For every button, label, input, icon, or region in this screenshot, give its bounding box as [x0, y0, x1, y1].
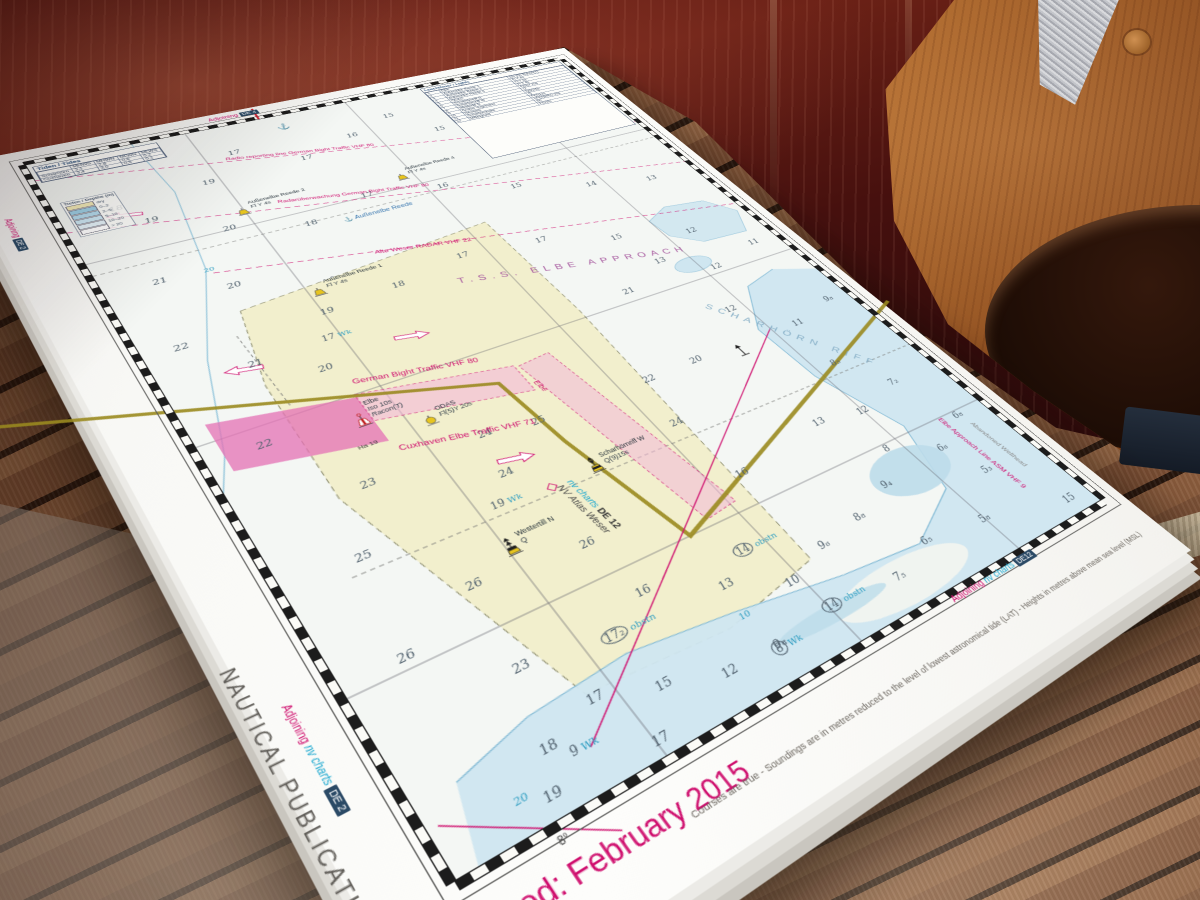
- buoy-label: Außenelbe Reede 1Fl Y 4s: [321, 263, 387, 288]
- photo-scene: Tiden / Tides MHWSMHWNMLWNMLWSScharhörn3…: [0, 0, 1200, 900]
- buoy-label: ODASFl(5)Y 20s: [433, 395, 474, 417]
- buoy-label: ElbeIso 10sRacon(T): [362, 391, 405, 418]
- buoy-label: Westertill NQ: [513, 515, 561, 544]
- wood-bung: [1124, 30, 1150, 54]
- buoy-label: Scharhörnriff WQ(9)15s: [597, 435, 653, 465]
- buoy-label: Außenelbe Reede 4Fl Y 4s: [403, 156, 459, 175]
- buoy-label: Außenelbe Reede 2Fl Y 4s: [246, 188, 309, 209]
